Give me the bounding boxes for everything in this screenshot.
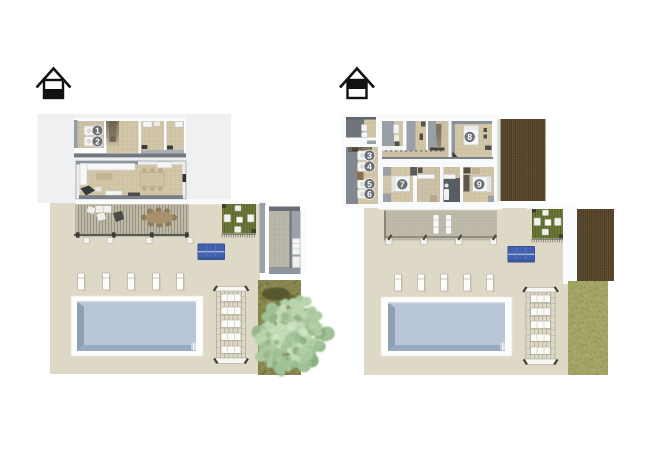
svg-text:2: 2 bbox=[95, 136, 100, 146]
svg-text:1: 1 bbox=[95, 125, 100, 135]
svg-text:9: 9 bbox=[477, 179, 482, 189]
svg-text:8: 8 bbox=[467, 132, 472, 142]
svg-text:7: 7 bbox=[400, 179, 405, 189]
svg-text:3: 3 bbox=[367, 150, 372, 160]
svg-text:5: 5 bbox=[367, 179, 372, 189]
svg-text:4: 4 bbox=[367, 161, 372, 171]
svg-text:6: 6 bbox=[367, 189, 372, 199]
